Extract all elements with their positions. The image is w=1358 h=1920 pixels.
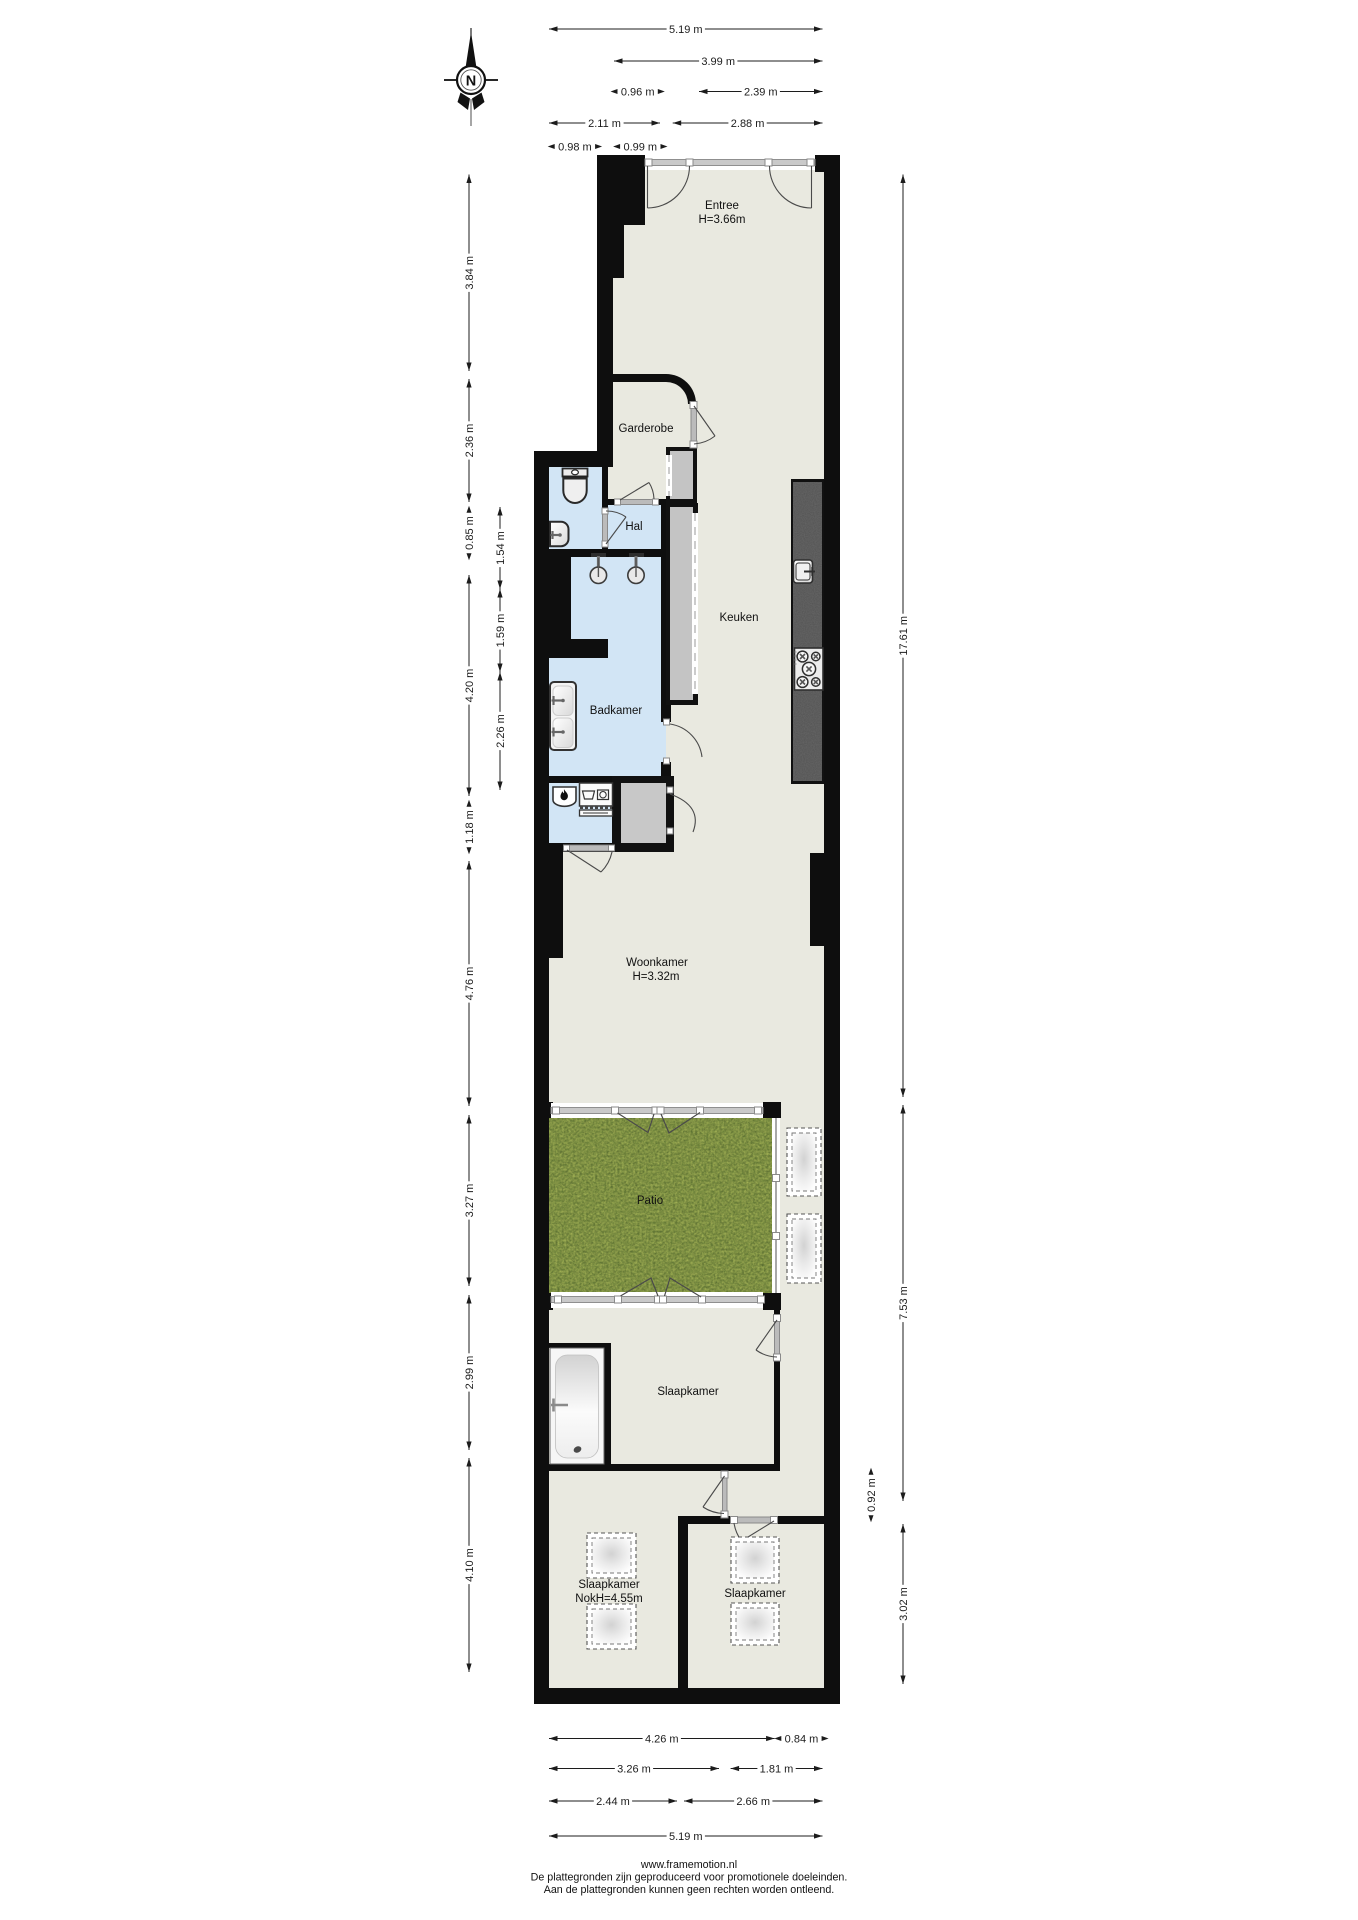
svg-text:4.26 m: 4.26 m [645,1734,679,1746]
svg-text:0.99 m: 0.99 m [623,142,657,154]
svg-text:2.36 m: 2.36 m [464,424,476,458]
svg-text:2.44 m: 2.44 m [596,1796,630,1808]
svg-text:Slaapkamer: Slaapkamer [578,1579,640,1591]
svg-text:2.99 m: 2.99 m [464,1356,476,1390]
svg-text:3.27 m: 3.27 m [464,1184,476,1218]
svg-text:www.framemotion.nl: www.framemotion.nl [640,1859,737,1871]
svg-text:Keuken: Keuken [719,612,758,624]
svg-text:3.99 m: 3.99 m [701,56,735,68]
svg-text:5.19 m: 5.19 m [669,1831,703,1843]
svg-text:3.02 m: 3.02 m [898,1587,910,1621]
svg-text:Hal: Hal [625,521,642,533]
svg-text:Slaapkamer: Slaapkamer [724,1588,786,1600]
svg-text:0.92 m: 0.92 m [866,1478,878,1512]
svg-text:3.26 m: 3.26 m [617,1764,651,1776]
svg-text:0.96 m: 0.96 m [621,87,655,99]
svg-text:1.18 m: 1.18 m [464,810,476,844]
svg-text:2.26 m: 2.26 m [495,714,507,748]
svg-text:4.20 m: 4.20 m [464,669,476,703]
svg-text:De plattegronden zijn geproduc: De plattegronden zijn geproduceerd voor … [531,1872,848,1884]
svg-text:Garderobe: Garderobe [619,423,674,435]
svg-text:0.85 m: 0.85 m [464,516,476,550]
svg-text:17.61 m: 17.61 m [898,616,910,656]
svg-text:1.54 m: 1.54 m [495,531,507,565]
svg-text:0.98 m: 0.98 m [558,142,592,154]
svg-text:N: N [466,74,476,90]
svg-text:2.88 m: 2.88 m [731,118,765,130]
svg-text:H=3.66m: H=3.66m [699,214,746,226]
svg-text:2.66 m: 2.66 m [736,1796,770,1808]
svg-text:Aan de plattegronden kunnen ge: Aan de plattegronden kunnen geen rechten… [544,1884,835,1896]
svg-text:Entree: Entree [705,200,739,212]
svg-text:H=3.32m: H=3.32m [633,971,680,983]
svg-text:2.11 m: 2.11 m [588,118,621,130]
svg-text:NokH=4.55m: NokH=4.55m [575,1593,642,1605]
svg-text:2.39 m: 2.39 m [744,87,778,99]
svg-text:4.76 m: 4.76 m [464,967,476,1001]
svg-text:7.53 m: 7.53 m [898,1286,910,1320]
svg-text:Slaapkamer: Slaapkamer [657,1386,719,1398]
svg-text:5.19 m: 5.19 m [669,24,703,36]
svg-text:1.81 m: 1.81 m [760,1764,794,1776]
svg-text:3.84 m: 3.84 m [464,256,476,290]
svg-text:4.10 m: 4.10 m [464,1548,476,1582]
svg-text:Patio: Patio [637,1195,663,1207]
svg-text:Woonkamer: Woonkamer [626,957,688,969]
svg-text:1.59 m: 1.59 m [495,614,507,648]
svg-text:0.84 m: 0.84 m [785,1734,819,1746]
svg-text:Badkamer: Badkamer [590,705,643,717]
